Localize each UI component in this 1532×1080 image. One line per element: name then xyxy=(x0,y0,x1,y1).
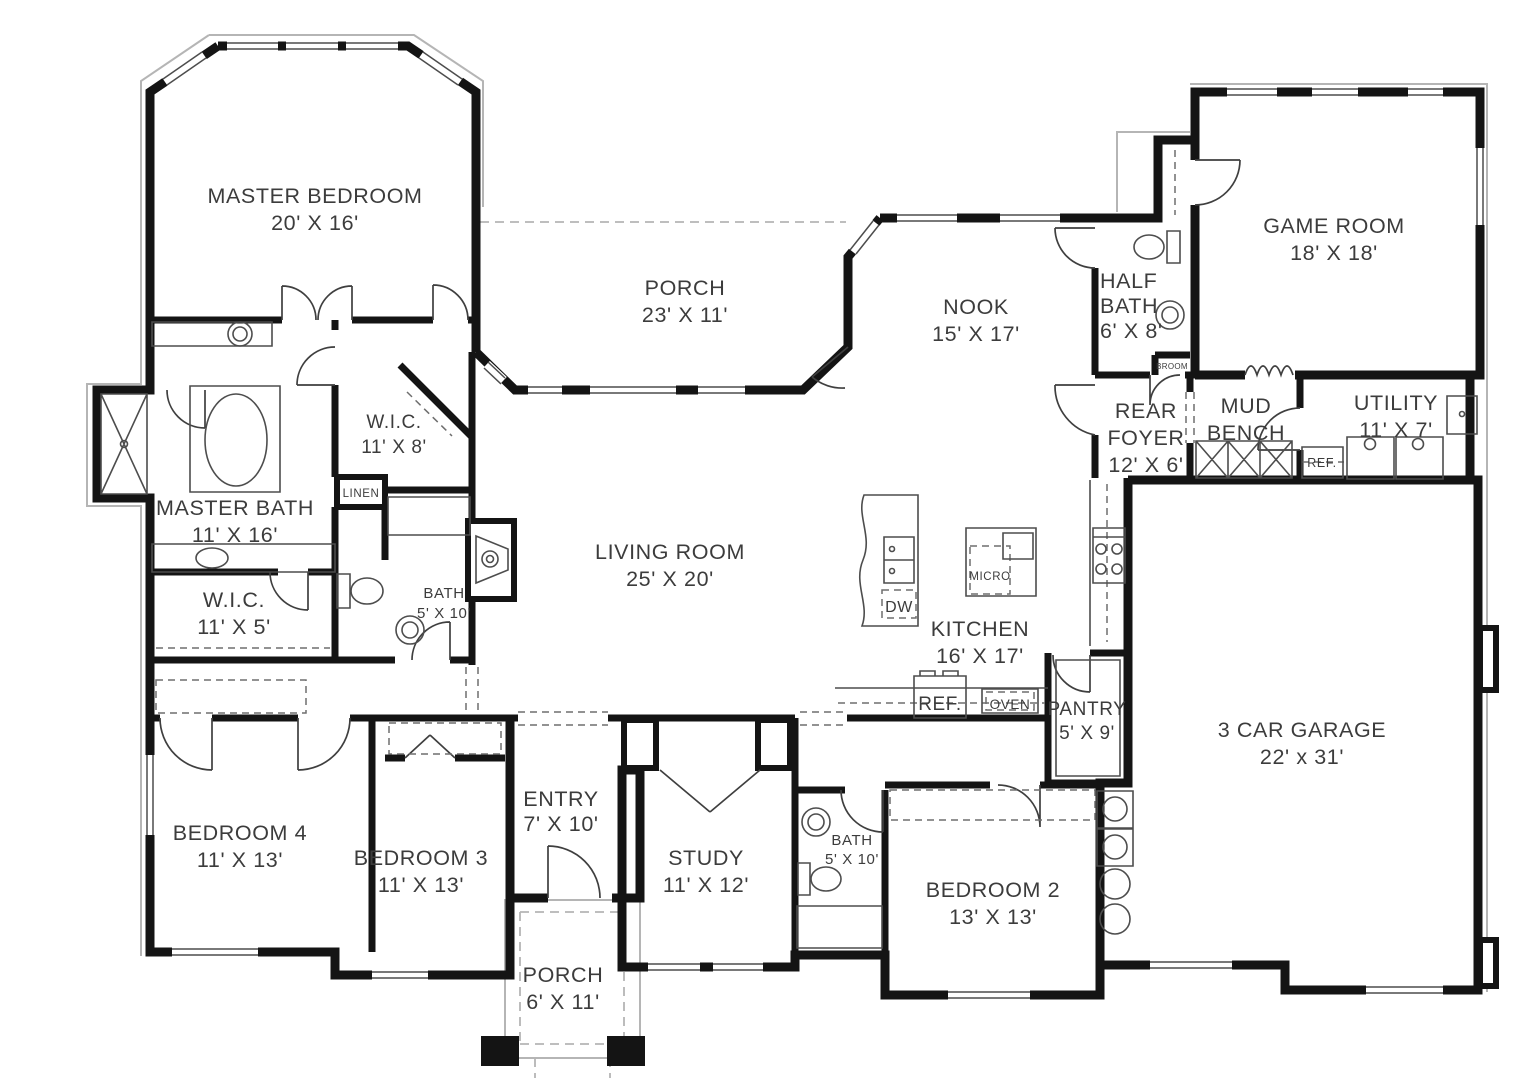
label-mud-bench-2: BENCH xyxy=(1207,421,1285,445)
label-bedroom-4: BEDROOM 4 xyxy=(173,821,307,845)
label-study-dims: 11' X 12' xyxy=(663,873,749,897)
label-game-room: GAME ROOM xyxy=(1263,214,1405,238)
label-master-bedroom: MASTER BEDROOM xyxy=(207,184,422,208)
label-study: STUDY xyxy=(668,846,744,870)
label-utility-dims: 11' X 7' xyxy=(1359,418,1433,442)
label-bath-2-dims: 5' X 10' xyxy=(825,851,879,868)
bath2-sink-inner xyxy=(808,814,824,830)
label-microwave: MICRO xyxy=(969,571,1010,583)
label-bedroom-2: BEDROOM 2 xyxy=(926,878,1060,902)
label-pantry-dims: 5' X 9' xyxy=(1059,723,1115,744)
label-refrigerator-utility: REF. xyxy=(1307,456,1337,470)
label-kitchen: KITCHEN xyxy=(931,617,1030,641)
label-refrigerator-kitchen: REF. xyxy=(918,694,962,715)
label-bath-2: BATH xyxy=(831,832,872,849)
bath2-sink xyxy=(802,808,830,836)
island-sink-faucet-1 xyxy=(890,547,895,552)
label-entry: ENTRY xyxy=(523,787,598,811)
label-garage-dims: 22' x 31' xyxy=(1260,745,1344,769)
label-rear-foyer-1: REAR xyxy=(1115,399,1177,423)
water-heater-1 xyxy=(1103,797,1127,821)
label-bedroom-4-dims: 11' X 13' xyxy=(197,848,283,872)
label-game-room-dims: 18' X 18' xyxy=(1290,241,1378,265)
label-half-bath-dims: 6' X 8' xyxy=(1100,319,1163,343)
cooktop-burner-2 xyxy=(1112,544,1122,554)
label-rear-foyer-dims: 12' X 6' xyxy=(1108,453,1183,477)
label-wic-8: W.I.C. xyxy=(366,412,421,433)
hall-bath-sink-inner xyxy=(402,622,418,638)
label-nook-dims: 15' X 17' xyxy=(932,322,1020,346)
label-utility: UTILITY xyxy=(1354,391,1438,415)
hall-bath-toilet xyxy=(351,578,383,604)
label-bedroom-3: BEDROOM 3 xyxy=(354,846,488,870)
label-porch-front-dims: 6' X 11' xyxy=(526,990,600,1014)
master-vanity-sink xyxy=(196,548,228,568)
water-heater-2 xyxy=(1103,835,1127,859)
label-half-bath-2: BATH xyxy=(1100,294,1158,318)
label-rear-foyer-2: FOYER xyxy=(1107,426,1184,450)
label-living-room: LIVING ROOM xyxy=(595,540,745,564)
utility-sink-faucet xyxy=(1460,412,1465,417)
label-nook: NOOK xyxy=(943,295,1009,319)
cooktop-burner-1 xyxy=(1096,544,1106,554)
label-bath-hall: BATH xyxy=(423,585,464,602)
label-master-bedroom-dims: 20' X 16' xyxy=(271,211,359,235)
label-master-bath: MASTER BATH xyxy=(156,496,314,520)
label-pantry: PANTRY xyxy=(1048,699,1127,720)
label-oven: OVEN xyxy=(990,697,1031,712)
master-tub xyxy=(205,394,267,486)
half-bath-sink-inner xyxy=(1162,307,1178,323)
label-mud-bench-1: MUD xyxy=(1221,394,1272,418)
half-bath-toilet xyxy=(1134,235,1164,259)
label-porch-rear-dims: 23' X 11' xyxy=(642,303,728,327)
floor-plan-svg: MASTER BEDROOM 20' X 16' PORCH 23' X 11'… xyxy=(0,0,1532,1080)
label-kitchen-dims: 16' X 17' xyxy=(936,644,1024,668)
label-porch-front: PORCH xyxy=(523,963,604,987)
label-dishwasher: DW xyxy=(885,599,913,616)
label-broom: BROOM xyxy=(1156,362,1188,371)
cooktop-burner-3 xyxy=(1096,564,1106,574)
master-hall-sink-inner xyxy=(233,327,247,341)
porch-columns xyxy=(481,1036,645,1066)
label-living-room-dims: 25' X 20' xyxy=(626,567,714,591)
label-entry-dims: 7' X 10' xyxy=(523,812,598,836)
exterior-wall-path-porch-nook xyxy=(476,140,1192,390)
label-half-bath-1: HALF xyxy=(1100,269,1157,293)
bath2-toilet xyxy=(811,867,841,891)
cooktop-burner-4 xyxy=(1112,564,1122,574)
master-hall-sink xyxy=(228,322,252,346)
label-wic-5-dims: 11' X 5' xyxy=(197,615,271,639)
label-bath-hall-dims: 5' X 10' xyxy=(417,605,471,622)
label-garage: 3 CAR GARAGE xyxy=(1218,718,1387,742)
label-master-bath-dims: 11' X 16' xyxy=(192,523,278,547)
floor-plan-page: MASTER BEDROOM 20' X 16' PORCH 23' X 11'… xyxy=(0,0,1532,1080)
label-wic-8-dims: 11' X 8' xyxy=(361,437,427,458)
label-bedroom-2-dims: 13' X 13' xyxy=(949,905,1037,929)
label-porch-rear: PORCH xyxy=(645,276,726,300)
island-sink-faucet-2 xyxy=(890,569,895,574)
label-wic-5: W.I.C. xyxy=(203,588,265,612)
label-bedroom-3-dims: 11' X 13' xyxy=(378,873,464,897)
label-linen: LINEN xyxy=(343,488,380,500)
porch-roofline-dashed xyxy=(480,222,846,1078)
